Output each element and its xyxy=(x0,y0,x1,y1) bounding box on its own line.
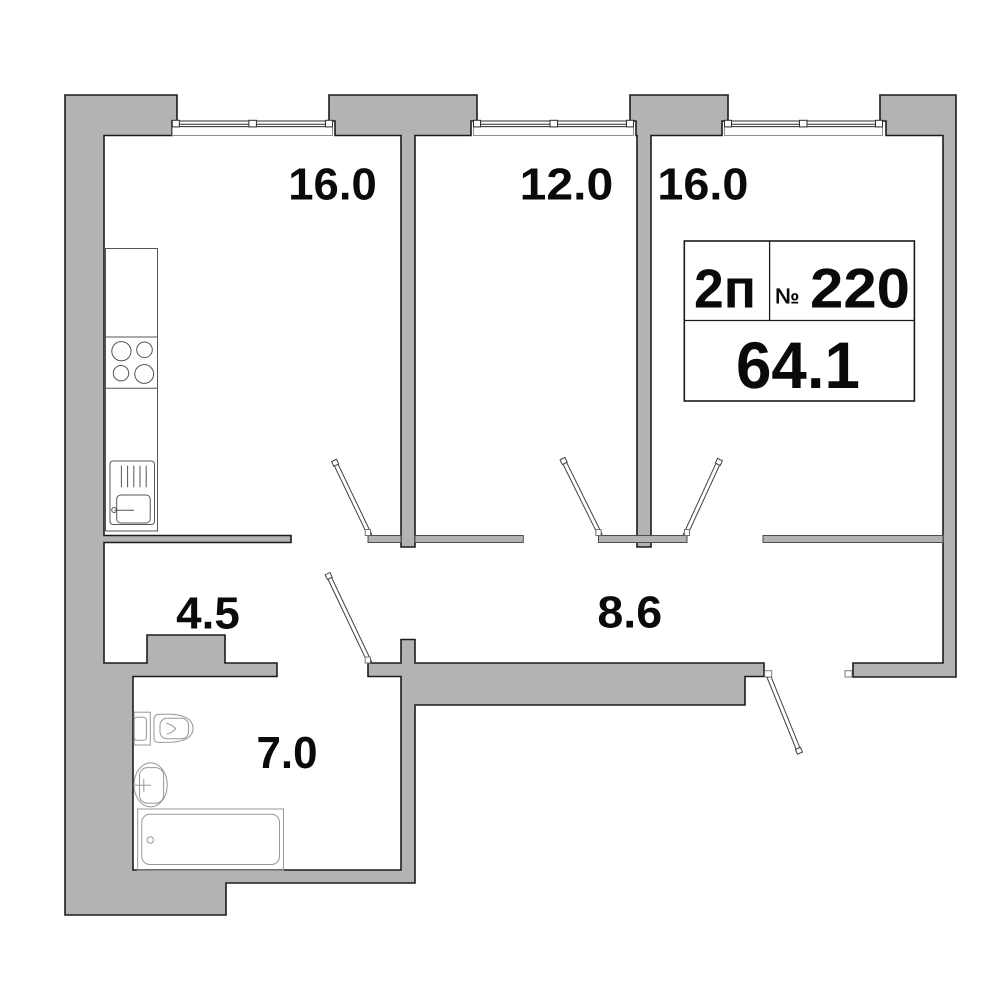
svg-text:№: № xyxy=(775,283,800,308)
svg-text:4.5: 4.5 xyxy=(176,588,240,639)
svg-text:8.6: 8.6 xyxy=(597,587,662,638)
svg-text:7.0: 7.0 xyxy=(257,727,318,778)
svg-text:16.0: 16.0 xyxy=(657,158,748,209)
svg-text:12.0: 12.0 xyxy=(520,158,614,209)
svg-text:2п: 2п xyxy=(694,257,756,319)
svg-text:64.1: 64.1 xyxy=(736,328,860,402)
svg-text:220: 220 xyxy=(810,256,910,319)
svg-text:16.0: 16.0 xyxy=(288,158,377,209)
